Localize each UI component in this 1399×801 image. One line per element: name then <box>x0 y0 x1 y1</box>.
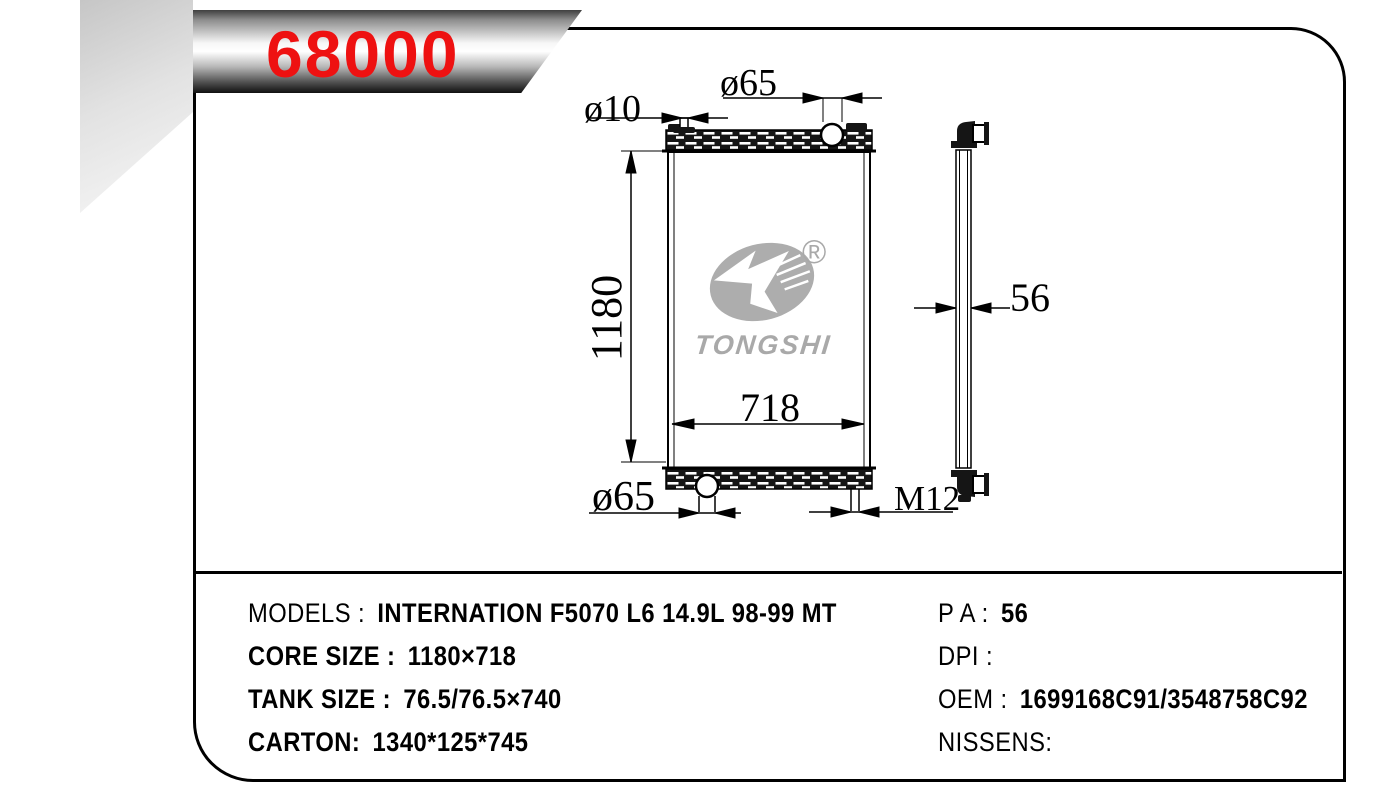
spec-row-tank-size: TANK SIZE :76.5/76.5×740 <box>248 682 562 716</box>
spec-value: 1180×718 <box>408 641 517 671</box>
spec-row-pa: P A :56 <box>938 596 1028 630</box>
dim-label-core-height: 1180 <box>585 252 629 384</box>
spec-row-oem: OEM :1699168C91/3548758C92 <box>938 682 1308 716</box>
part-number: 68000 <box>266 21 460 87</box>
spec-label: CORE SIZE : <box>248 641 395 671</box>
dim-label-thickness: 56 <box>1010 278 1050 318</box>
spec-label: TANK SIZE : <box>248 684 391 714</box>
part-number-banner: 68000 <box>190 10 582 93</box>
dim-label-core-width: 718 <box>728 388 812 428</box>
radiator-spec-sheet: 68000 T ø10 ø65 1180 718 ø65 M12 56 ® TO… <box>0 0 1399 801</box>
spec-row-carton: CARTON:1340*125*745 <box>248 725 528 759</box>
spec-row-nissens: NISSENS: <box>938 725 1065 759</box>
dim-label-stud: M12 <box>894 481 960 516</box>
spec-label: CARTON: <box>248 727 360 757</box>
spec-label: OEM : <box>938 684 1008 714</box>
spec-row-core-size: CORE SIZE :1180×718 <box>248 639 516 673</box>
brand-name: TONGSHI <box>686 330 839 361</box>
spec-label: NISSENS: <box>938 727 1052 757</box>
spec-row-dpi: DPI : <box>938 639 1005 673</box>
spec-value: 56 <box>1001 598 1028 628</box>
registered-trademark-symbol: ® <box>802 233 826 271</box>
spec-row-models: MODELS :INTERNATION F5070 L6 14.9L 98-99… <box>248 596 837 630</box>
spec-label: P A : <box>938 598 989 628</box>
dim-label-filler-neck: ø65 <box>720 64 777 102</box>
dim-label-top-inlet: ø10 <box>584 90 641 128</box>
dim-label-outlet: ø65 <box>592 476 655 518</box>
spec-value: 1699168C91/3548758C92 <box>1020 684 1308 714</box>
spec-value: 1340*125*745 <box>373 727 529 757</box>
spec-value: INTERNATION F5070 L6 14.9L 98-99 MT <box>377 598 836 628</box>
technical-drawing <box>0 0 1399 801</box>
spec-label: MODELS : <box>248 598 365 628</box>
spec-value: 76.5/76.5×740 <box>403 684 561 714</box>
spec-label: DPI : <box>938 641 993 671</box>
